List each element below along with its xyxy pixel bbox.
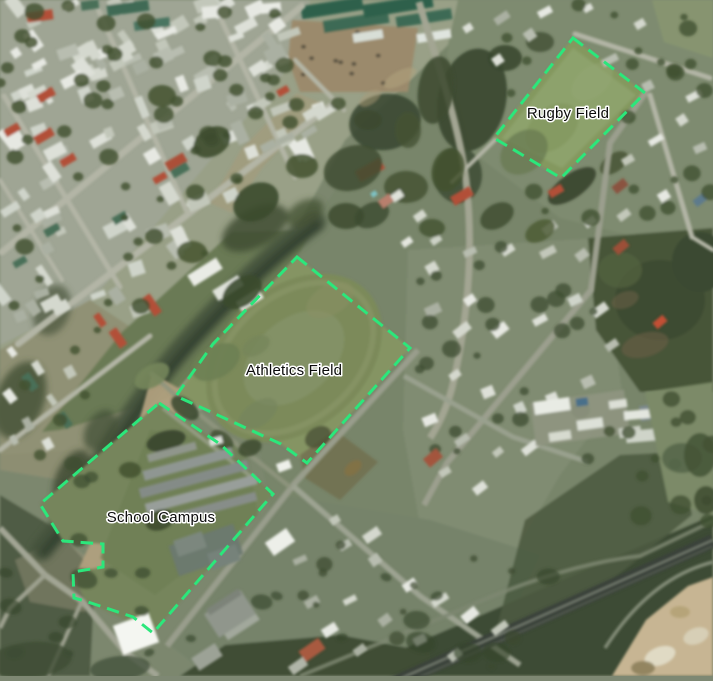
svg-text:Athletics Field: Athletics Field: [246, 362, 342, 379]
svg-text:School Campus: School Campus: [107, 509, 216, 526]
svg-text:Rugby Field: Rugby Field: [527, 105, 609, 122]
